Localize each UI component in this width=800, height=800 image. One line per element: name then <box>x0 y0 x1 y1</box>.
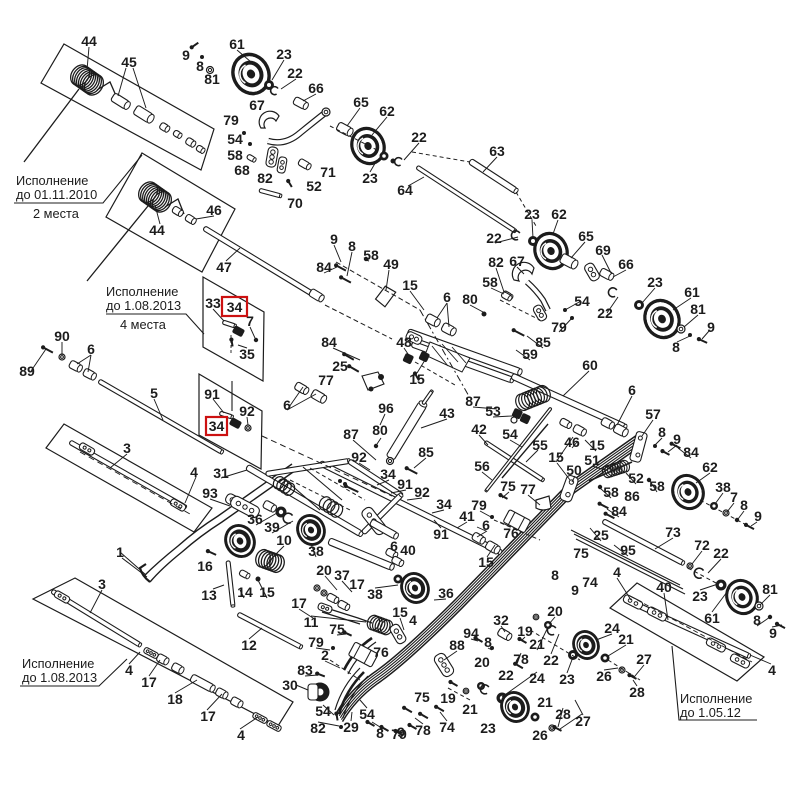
svg-text:40: 40 <box>656 579 672 595</box>
svg-text:44: 44 <box>81 33 97 49</box>
svg-text:83: 83 <box>297 662 313 678</box>
svg-text:25: 25 <box>332 358 348 374</box>
svg-text:74: 74 <box>582 574 598 590</box>
svg-text:71: 71 <box>320 164 336 180</box>
svg-text:63: 63 <box>489 143 505 159</box>
svg-text:84: 84 <box>611 503 627 519</box>
svg-text:6: 6 <box>482 517 490 533</box>
svg-text:49: 49 <box>383 256 399 272</box>
svg-text:34: 34 <box>209 418 225 434</box>
svg-text:25: 25 <box>593 527 609 543</box>
svg-text:15: 15 <box>409 371 425 387</box>
svg-text:20: 20 <box>316 562 332 578</box>
svg-text:36: 36 <box>438 585 454 601</box>
svg-text:62: 62 <box>702 459 718 475</box>
svg-text:34: 34 <box>436 496 452 512</box>
svg-text:84: 84 <box>316 259 332 275</box>
svg-text:86: 86 <box>624 488 640 504</box>
svg-text:78: 78 <box>415 722 431 738</box>
svg-text:69: 69 <box>595 242 611 258</box>
svg-text:21: 21 <box>462 701 478 717</box>
svg-text:27: 27 <box>636 651 652 667</box>
svg-text:4: 4 <box>768 662 776 678</box>
svg-text:7: 7 <box>730 489 738 505</box>
svg-text:6: 6 <box>443 289 451 305</box>
svg-text:52: 52 <box>306 178 322 194</box>
svg-text:4: 4 <box>190 464 198 480</box>
svg-text:32: 32 <box>493 612 509 628</box>
svg-text:87: 87 <box>343 426 359 442</box>
svg-text:до 01.11.2010: до 01.11.2010 <box>16 187 97 202</box>
svg-text:Исполнение: Исполнение <box>106 284 178 299</box>
svg-text:22: 22 <box>713 545 729 561</box>
svg-text:93: 93 <box>202 485 218 501</box>
svg-text:81: 81 <box>762 581 778 597</box>
svg-text:80: 80 <box>372 422 388 438</box>
svg-text:30: 30 <box>282 677 298 693</box>
svg-text:46: 46 <box>206 202 222 218</box>
svg-text:87: 87 <box>465 393 481 409</box>
svg-text:8: 8 <box>484 634 492 650</box>
svg-text:54: 54 <box>315 703 331 719</box>
svg-text:92: 92 <box>414 484 430 500</box>
svg-text:74: 74 <box>439 719 455 735</box>
svg-text:96: 96 <box>378 400 394 416</box>
svg-text:75: 75 <box>500 478 516 494</box>
svg-text:38: 38 <box>308 543 324 559</box>
svg-text:53: 53 <box>485 403 501 419</box>
svg-text:65: 65 <box>578 228 594 244</box>
svg-text:23: 23 <box>559 671 575 687</box>
svg-text:95: 95 <box>620 542 636 558</box>
svg-text:Исполнение: Исполнение <box>16 173 88 188</box>
svg-text:91: 91 <box>397 476 413 492</box>
svg-text:72: 72 <box>694 537 710 553</box>
svg-text:24: 24 <box>529 670 545 686</box>
svg-text:23: 23 <box>276 46 292 62</box>
svg-text:18: 18 <box>167 691 183 707</box>
svg-text:9: 9 <box>754 508 762 524</box>
svg-text:6: 6 <box>283 397 291 413</box>
svg-text:88: 88 <box>449 637 465 653</box>
svg-text:11: 11 <box>304 614 319 630</box>
svg-text:65: 65 <box>353 94 369 110</box>
svg-text:58: 58 <box>482 274 498 290</box>
svg-text:47: 47 <box>216 259 232 275</box>
svg-text:91: 91 <box>204 386 220 402</box>
svg-text:15: 15 <box>589 437 605 453</box>
svg-text:90: 90 <box>54 328 70 344</box>
svg-text:14: 14 <box>237 584 253 600</box>
svg-text:до 1.08.2013: до 1.08.2013 <box>22 670 97 685</box>
svg-text:19: 19 <box>440 690 456 706</box>
svg-text:6: 6 <box>87 341 95 357</box>
svg-text:75: 75 <box>414 689 430 705</box>
svg-text:68: 68 <box>234 162 250 178</box>
svg-text:28: 28 <box>555 706 571 722</box>
svg-text:54: 54 <box>227 131 243 147</box>
svg-text:81: 81 <box>690 301 706 317</box>
svg-text:61: 61 <box>684 284 700 300</box>
svg-text:26: 26 <box>532 727 548 743</box>
svg-text:23: 23 <box>524 206 540 222</box>
svg-text:2: 2 <box>321 647 329 663</box>
svg-text:15: 15 <box>402 277 418 293</box>
svg-text:36: 36 <box>247 511 263 527</box>
svg-text:79: 79 <box>223 112 239 128</box>
svg-text:42: 42 <box>471 421 487 437</box>
svg-text:76: 76 <box>503 525 519 541</box>
svg-text:17: 17 <box>291 595 307 611</box>
svg-text:10: 10 <box>276 532 292 548</box>
svg-text:76: 76 <box>373 644 389 660</box>
svg-text:28: 28 <box>629 684 645 700</box>
svg-text:4: 4 <box>125 662 133 678</box>
svg-text:6: 6 <box>390 538 398 554</box>
svg-text:67: 67 <box>249 97 265 113</box>
svg-text:4: 4 <box>409 612 417 628</box>
svg-text:60: 60 <box>582 357 598 373</box>
svg-text:81: 81 <box>204 71 220 87</box>
svg-text:23: 23 <box>480 720 496 736</box>
svg-text:13: 13 <box>201 587 217 603</box>
svg-text:77: 77 <box>318 372 334 388</box>
svg-text:16: 16 <box>197 558 213 574</box>
svg-text:17: 17 <box>349 576 365 592</box>
svg-text:48: 48 <box>396 334 412 350</box>
svg-text:94: 94 <box>463 625 479 641</box>
svg-text:61: 61 <box>229 36 245 52</box>
svg-text:38: 38 <box>715 479 731 495</box>
svg-text:21: 21 <box>618 631 634 647</box>
svg-text:9: 9 <box>330 231 338 247</box>
svg-text:21: 21 <box>529 636 545 652</box>
svg-text:58: 58 <box>363 247 379 263</box>
svg-text:55: 55 <box>532 437 548 453</box>
svg-text:15: 15 <box>259 584 275 600</box>
svg-text:58: 58 <box>227 147 243 163</box>
svg-text:22: 22 <box>486 230 502 246</box>
svg-text:4: 4 <box>613 564 621 580</box>
svg-text:34: 34 <box>380 466 396 482</box>
svg-text:17: 17 <box>141 674 157 690</box>
svg-text:8: 8 <box>348 238 356 254</box>
svg-text:15: 15 <box>392 604 408 620</box>
svg-text:8: 8 <box>196 58 204 74</box>
svg-text:45: 45 <box>121 54 137 70</box>
svg-text:91: 91 <box>433 526 449 542</box>
svg-text:58: 58 <box>649 478 665 494</box>
svg-text:5: 5 <box>150 385 158 401</box>
svg-text:85: 85 <box>418 444 434 460</box>
svg-text:22: 22 <box>498 667 514 683</box>
svg-text:84: 84 <box>683 444 699 460</box>
svg-text:8: 8 <box>658 424 666 440</box>
svg-text:54: 54 <box>359 706 375 722</box>
svg-text:64: 64 <box>397 182 413 198</box>
svg-text:92: 92 <box>239 403 255 419</box>
svg-text:78: 78 <box>513 651 529 667</box>
svg-text:9: 9 <box>769 625 777 641</box>
svg-text:23: 23 <box>692 588 708 604</box>
svg-text:80: 80 <box>462 291 478 307</box>
svg-text:26: 26 <box>596 668 612 684</box>
svg-text:51: 51 <box>584 452 600 468</box>
svg-text:3: 3 <box>123 440 131 456</box>
svg-text:9: 9 <box>571 582 579 598</box>
svg-text:4 места: 4 места <box>120 317 167 332</box>
svg-text:4: 4 <box>237 727 245 743</box>
svg-text:67: 67 <box>509 253 525 269</box>
svg-text:66: 66 <box>618 256 634 272</box>
svg-text:62: 62 <box>551 206 567 222</box>
svg-text:15: 15 <box>548 449 564 465</box>
svg-text:62: 62 <box>379 103 395 119</box>
svg-text:61: 61 <box>704 610 720 626</box>
svg-text:17: 17 <box>200 708 216 724</box>
svg-text:40: 40 <box>400 542 416 558</box>
svg-text:56: 56 <box>474 458 490 474</box>
svg-text:50: 50 <box>566 462 582 478</box>
svg-text:до 1.05.12: до 1.05.12 <box>680 705 741 720</box>
svg-text:9: 9 <box>673 431 681 447</box>
svg-text:23: 23 <box>362 170 378 186</box>
svg-text:8: 8 <box>753 612 761 628</box>
svg-text:2 места: 2 места <box>33 206 80 221</box>
svg-text:9: 9 <box>182 47 190 63</box>
svg-text:29: 29 <box>343 719 359 735</box>
svg-text:37: 37 <box>334 567 350 583</box>
svg-text:70: 70 <box>287 195 303 211</box>
svg-text:66: 66 <box>308 80 324 96</box>
svg-text:35: 35 <box>239 346 255 362</box>
svg-text:75: 75 <box>573 545 589 561</box>
svg-text:9: 9 <box>397 724 405 740</box>
svg-text:1: 1 <box>116 544 124 560</box>
svg-text:9: 9 <box>707 319 715 335</box>
svg-text:82: 82 <box>310 720 326 736</box>
svg-text:12: 12 <box>241 637 257 653</box>
svg-text:43: 43 <box>439 405 455 421</box>
svg-text:22: 22 <box>597 305 613 321</box>
svg-text:33: 33 <box>205 295 221 311</box>
svg-text:22: 22 <box>287 65 303 81</box>
svg-text:57: 57 <box>645 406 661 422</box>
svg-text:89: 89 <box>19 363 35 379</box>
svg-text:3: 3 <box>98 576 106 592</box>
svg-text:22: 22 <box>543 652 559 668</box>
svg-text:Исполнение: Исполнение <box>680 691 752 706</box>
svg-text:38: 38 <box>367 586 383 602</box>
svg-text:8: 8 <box>376 725 384 741</box>
svg-text:20: 20 <box>474 654 490 670</box>
svg-text:44: 44 <box>149 222 165 238</box>
svg-text:84: 84 <box>321 334 337 350</box>
svg-text:31: 31 <box>213 465 229 481</box>
svg-text:79: 79 <box>471 497 487 513</box>
svg-text:21: 21 <box>537 694 553 710</box>
svg-text:27: 27 <box>575 713 591 729</box>
svg-text:73: 73 <box>665 524 681 540</box>
svg-text:8: 8 <box>672 339 680 355</box>
svg-text:82: 82 <box>488 254 504 270</box>
svg-text:8: 8 <box>740 497 748 513</box>
svg-text:46: 46 <box>564 434 580 450</box>
svg-text:23: 23 <box>647 274 663 290</box>
svg-text:15: 15 <box>478 554 494 570</box>
svg-text:77: 77 <box>520 481 536 497</box>
svg-text:75: 75 <box>329 621 345 637</box>
svg-text:92: 92 <box>351 449 367 465</box>
svg-text:58: 58 <box>603 484 619 500</box>
svg-text:до 1.08.2013: до 1.08.2013 <box>106 298 181 313</box>
svg-text:59: 59 <box>522 346 538 362</box>
svg-text:6: 6 <box>628 382 636 398</box>
svg-text:Исполнение: Исполнение <box>22 656 94 671</box>
svg-text:20: 20 <box>547 603 563 619</box>
svg-text:34: 34 <box>227 299 243 315</box>
svg-text:52: 52 <box>628 470 644 486</box>
svg-text:54: 54 <box>502 426 518 442</box>
svg-text:54: 54 <box>574 293 590 309</box>
svg-text:8: 8 <box>551 567 559 583</box>
svg-text:82: 82 <box>257 170 273 186</box>
svg-text:79: 79 <box>551 319 567 335</box>
svg-text:22: 22 <box>411 129 427 145</box>
